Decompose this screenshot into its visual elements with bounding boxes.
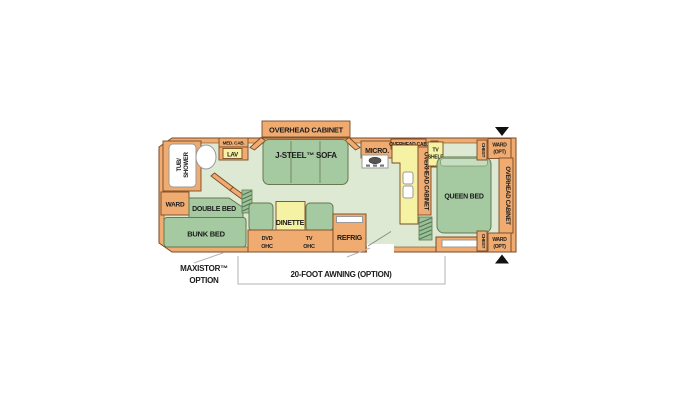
queen-bed-label: QUEEN BED [444,194,484,201]
bedroom-steps [419,217,432,240]
tv-ohc-label-1: TV [306,236,313,242]
tv-ohc-label-2: OHC [303,244,315,250]
dinette-label: DINETTE [276,220,305,227]
double-bed-label: DOUBLE BED [192,206,236,213]
maxistor-label-2: OPTION [189,276,219,285]
awning-label: 20-FOOT AWNING (OPTION) [290,270,392,279]
lower-cabinet-strip: DVD OHC TV OHC [248,230,333,252]
micro-label: MICRO. [365,148,389,155]
maxistor-label-1: MAXISTOR™ [180,264,228,273]
tub-shower-label-1: TUB/ [177,158,183,172]
dinette-table [276,202,305,232]
maxistor-leader-line [194,253,224,264]
ward-label: WARD [166,202,185,209]
ward-opt-bottom-label-1: WARD [492,237,507,243]
tv-shelf-label-1: TV [433,148,440,154]
ward-opt-top-label-1: WARD [492,143,507,149]
slide-arrow-bottom-icon [495,255,509,264]
dvd-ohc-label-2: OHC [261,244,273,250]
bunk-bed-label: BUNK BED [187,230,225,239]
dinette-bench-left [249,203,273,231]
sofa [263,140,348,185]
stove [362,155,388,168]
overhead-cabinet-rear-label: OVERHEAD CABINET [504,166,510,225]
dvd-ohc-label-1: DVD [262,236,273,242]
sofa-slideout: OVERHEAD CABINET J-STEEL™ SOFA [250,121,360,185]
overhead-cabinet-top-label: OVERHEAD CABINET [269,126,344,135]
dinette: DINETTE [249,202,333,232]
ward-opt-top [488,139,511,159]
slide-arrow-top-icon [495,127,509,136]
floorplan: TUB/ SHOWER MED. CAB. LAV WARD DOUBLE BE… [0,0,680,408]
sink-bowl [403,186,413,198]
med-cab-label: MED. CAB. [223,141,245,146]
chest-bottom-label: CHEST [481,234,486,249]
chest-top-label: CHEST [481,143,486,158]
annotations: MAXISTOR™ OPTION 20-FOOT AWNING (OPTION) [180,248,445,285]
tub-shower-label-2: SHOWER [184,151,190,177]
ward-opt-top-label-2: (OPT) [493,150,506,156]
lav-label: LAV [227,153,238,159]
ward-opt-bottom-label-2: (OPT) [493,244,506,250]
toilet [196,145,216,169]
sink-bowl [403,172,413,184]
sofa-label: J-STEEL™ SOFA [275,151,337,160]
refrig-label: REFRIG [337,235,363,242]
refrigerator: REFRIG [333,214,366,252]
dinette-bench-right [306,203,333,231]
